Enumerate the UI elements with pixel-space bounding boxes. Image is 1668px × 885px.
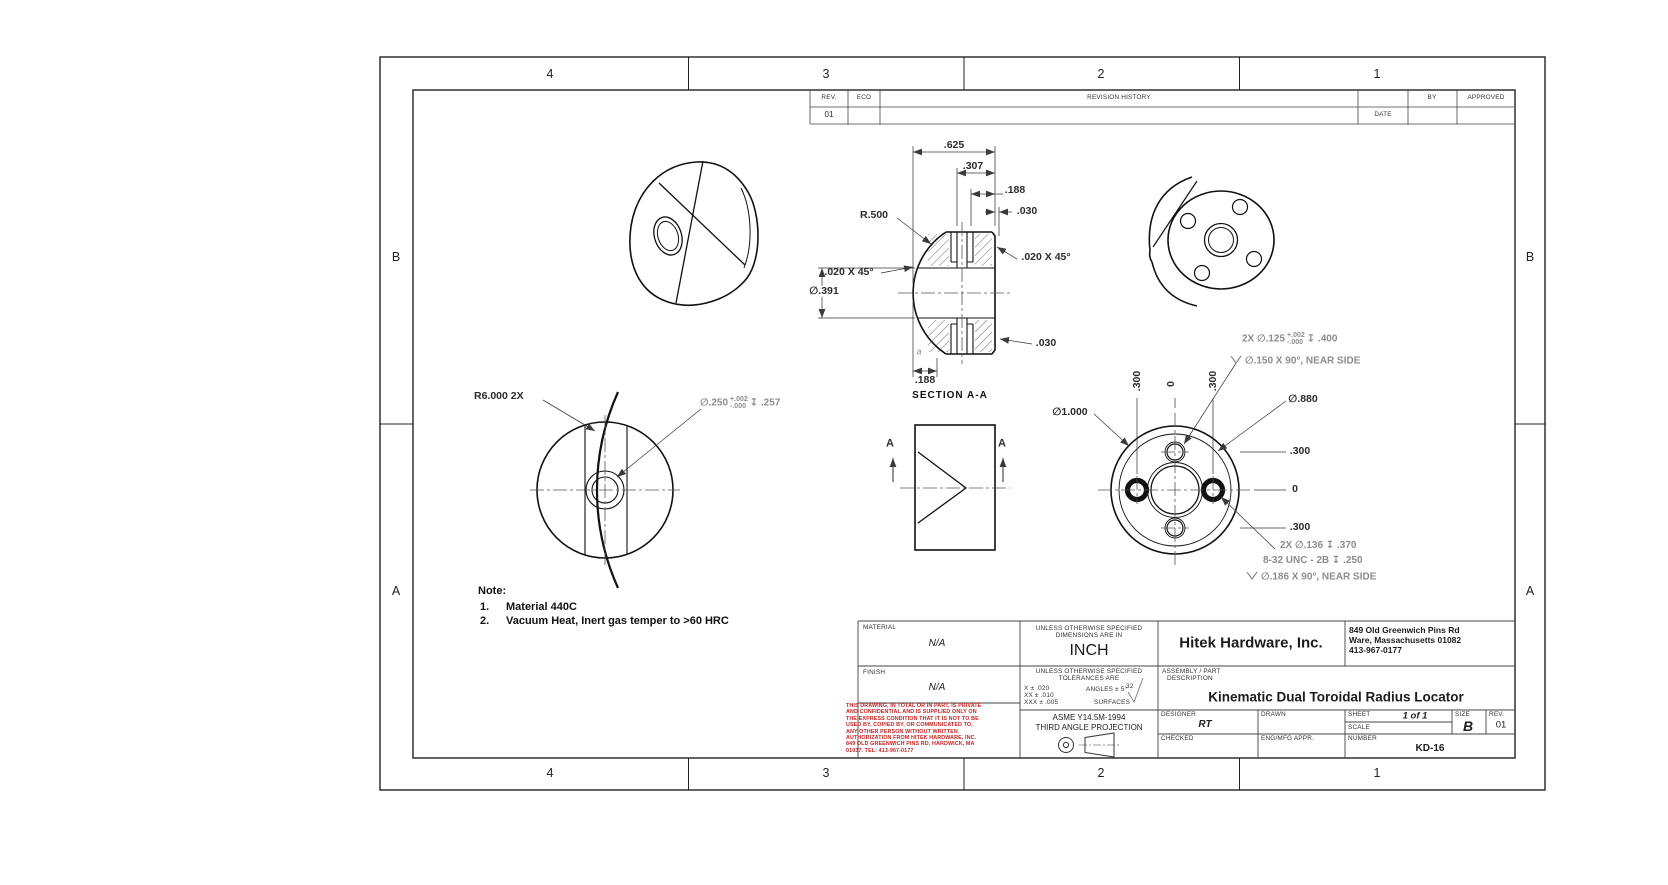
material-label: MATERIAL	[863, 625, 896, 631]
drawn-label: DRAWN	[1261, 712, 1286, 718]
callout-136-line3: ∅.186 X 90°, NEAR SIDE	[1246, 571, 1376, 583]
rev-table-header-approved: APPROVED	[1467, 95, 1504, 101]
standard-label: ASME Y14.5M-1994	[1053, 714, 1126, 722]
radius-6000-callout: R6.000 2X	[474, 391, 524, 402]
tolerance-surfaces-value: 32	[1126, 684, 1134, 690]
projection-label: THIRD ANGLE PROJECTION	[1035, 724, 1142, 732]
dim-dia-1000: ∅1.000	[1052, 407, 1087, 418]
rev-table-header-eco: ECO	[857, 95, 871, 101]
zone-left-a: A	[392, 585, 400, 598]
rev-label: REV.	[1489, 712, 1504, 718]
dim-188-top: .188	[1005, 185, 1025, 196]
tolerance-note-line2: TOLERANCES ARE	[1059, 676, 1120, 682]
zone-top-3: 3	[823, 68, 830, 81]
material-value: N/A	[929, 639, 946, 649]
callout-125-line1: 2X ∅.125+.002-.000↧ .400	[1242, 332, 1337, 346]
hole-250-dia: ∅.250	[700, 398, 728, 409]
rev-table-header-date: DATE	[1374, 112, 1391, 118]
zone-top-4: 4	[547, 68, 554, 81]
eng-appr-label: ENG/MFG APPR.	[1261, 736, 1314, 742]
scale-label: SCALE	[1348, 725, 1370, 731]
callout-125-tolerance: +.002-.000	[1287, 332, 1305, 346]
rev-table-header-by: BY	[1428, 95, 1437, 101]
drawing-page: 4 3 2 1 4 3 2 1 B A B A REV. ECO REVISIO…	[0, 0, 1668, 885]
ordinate-top-300a: .300	[1132, 371, 1143, 391]
checked-label: CHECKED	[1161, 736, 1194, 742]
sheet-label: SHEET	[1348, 712, 1370, 718]
tolerance-angles: ANGLES ± 5°	[1086, 687, 1127, 693]
tolerance-surfaces-label: SURFACES	[1094, 700, 1130, 706]
zone-top-1: 1	[1374, 68, 1381, 81]
note-1-text: Material 440C	[506, 602, 577, 613]
rev-table-header-rev: REV.	[821, 95, 836, 101]
company-name: Hitek Hardware, Inc.	[1179, 636, 1322, 651]
finish-value: N/A	[929, 683, 946, 693]
section-view-label: SECTION A-A	[912, 391, 988, 401]
part-description: Kinematic Dual Toroidal Radius Locator	[1208, 690, 1464, 704]
designer-label: DESIGNER	[1161, 712, 1196, 718]
section-arrow-label-left: A	[886, 439, 894, 450]
dim-dia-880: ∅.880	[1288, 394, 1317, 405]
units-note-line2: DIMENSIONS ARE IN	[1056, 633, 1123, 639]
confidentiality-disclaimer: THIS DRAWING, IN TOTAL OR IN PART, IS PR…	[846, 703, 1016, 754]
countersink-icon	[1246, 571, 1258, 583]
ordinate-top-0: 0	[1166, 381, 1177, 387]
company-address-line2: Ware, Massachusetts 01082	[1349, 636, 1461, 645]
company-address-line3: 413-967-0177	[1349, 646, 1402, 655]
units-value: INCH	[1069, 643, 1108, 659]
zone-bottom-3: 3	[823, 767, 830, 780]
dim-625: .625	[944, 140, 964, 151]
callout-136-line1: 2X ∅.136 ↧ .370	[1280, 541, 1356, 551]
hole-250-tolerance: +.002-.000	[730, 396, 748, 410]
note-1-num: 1.	[480, 602, 489, 613]
company-address-line1: 849 Old Greenwich Pins Rd	[1349, 626, 1460, 635]
zone-right-a: A	[1526, 585, 1534, 598]
zone-bottom-4: 4	[547, 767, 554, 780]
callout-125-line2: ∅.150 X 90°, NEAR SIDE	[1230, 355, 1360, 367]
datum-a-label: a	[916, 348, 921, 357]
note-2-text: Vacuum Heat, Inert gas temper to >60 HRC	[506, 616, 729, 627]
zone-top-2: 2	[1098, 68, 1105, 81]
notes-title: Note:	[478, 586, 506, 597]
dim-030-top: .030	[1017, 206, 1037, 217]
dim-chamfer-left: .020 X 45°	[824, 267, 873, 278]
dim-307: .307	[963, 161, 983, 172]
zone-bottom-2: 2	[1098, 767, 1105, 780]
zone-right-b: B	[1526, 251, 1534, 264]
rev-table-header-history: REVISION HISTORY	[1087, 95, 1151, 101]
rev-table-row-rev: 01	[825, 111, 834, 119]
ordinate-top-300b: .300	[1208, 371, 1219, 391]
assembly-label-line2: DESCRIPTION	[1167, 676, 1213, 682]
dim-030-bottom: .030	[1036, 338, 1056, 349]
zone-left-b: B	[392, 251, 400, 264]
callout-136-line2: 8-32 UNC - 2B ↧ .250	[1263, 556, 1363, 566]
rev-value: 01	[1496, 720, 1507, 730]
number-value: KD-16	[1416, 744, 1445, 754]
dim-radius-500: R.500	[858, 210, 890, 221]
countersink-icon	[1230, 355, 1242, 367]
ordinate-right-300b: .300	[1290, 522, 1310, 533]
section-arrow-label-right: A	[998, 439, 1006, 450]
tolerance-xxx: XXX ± .005	[1024, 700, 1058, 706]
dim-188-bottom: .188	[915, 375, 935, 386]
zone-bottom-1: 1	[1374, 767, 1381, 780]
dim-bore-dia: ∅.391	[807, 286, 840, 297]
size-value: B	[1463, 719, 1473, 733]
number-label: NUMBER	[1348, 736, 1377, 742]
disclaimer-line: 01037. TEL: 413-967-0177	[846, 748, 1016, 754]
finish-label: FINISH	[863, 670, 885, 676]
sheet-value: 1 of 1	[1403, 711, 1428, 721]
hole-250-depth: ↧ .257	[750, 398, 781, 409]
note-2-num: 2.	[480, 616, 489, 627]
dim-chamfer-right: .020 X 45°	[1021, 252, 1070, 263]
ordinate-right-300a: .300	[1290, 446, 1310, 457]
hole-250-callout: ∅.250+.002-.000↧ .257	[700, 396, 780, 410]
designer-value: RT	[1198, 720, 1211, 730]
ordinate-right-0: 0	[1292, 484, 1298, 495]
